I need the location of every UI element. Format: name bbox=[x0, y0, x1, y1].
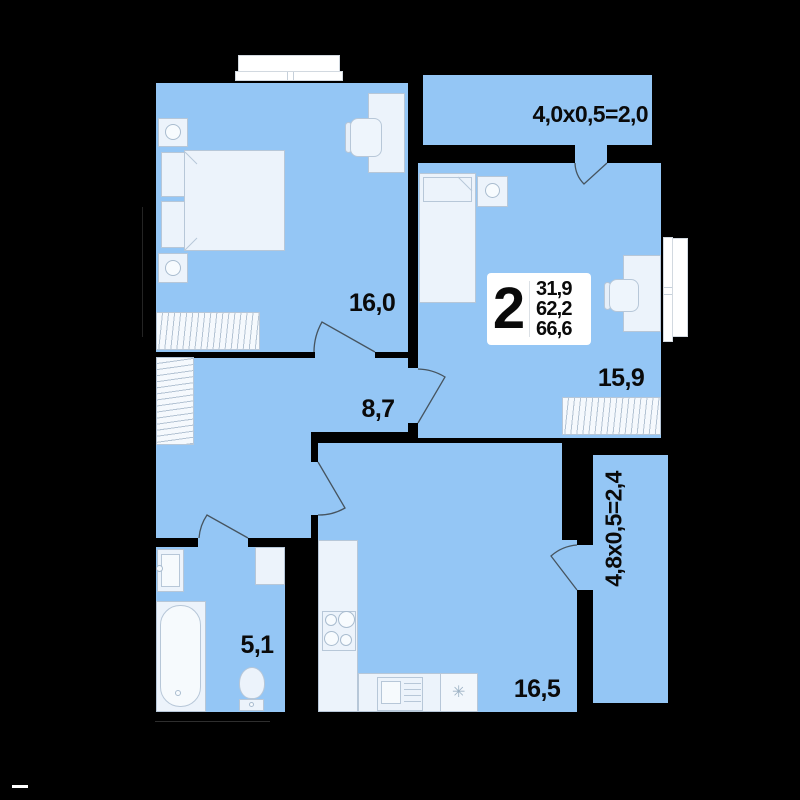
washbasin-bowl bbox=[161, 554, 180, 587]
lamp-icon bbox=[165, 260, 181, 276]
balcony-top-label: 4,0x0,5=2,0 bbox=[423, 101, 648, 128]
chair bbox=[609, 279, 639, 312]
door-opening-balcony-right bbox=[577, 545, 593, 590]
living-area-value: 31,9 bbox=[536, 279, 591, 299]
bedroom2-area-label: 15,9 bbox=[571, 364, 671, 393]
apartment-area-value: 62,2 bbox=[536, 299, 591, 319]
corner-dash bbox=[12, 785, 28, 788]
door-opening-bedroom bbox=[315, 352, 375, 358]
total-area-value: 66,6 bbox=[536, 319, 591, 339]
bed-pillow bbox=[161, 201, 185, 248]
dish-rack-icon bbox=[404, 683, 421, 705]
wardrobe bbox=[156, 312, 260, 350]
window-tick bbox=[287, 72, 288, 80]
burner-icon bbox=[324, 631, 339, 646]
kitchen-sink bbox=[381, 681, 401, 704]
door-opening-kitchen bbox=[311, 462, 318, 515]
bedroom-area-label: 16,0 bbox=[322, 289, 422, 318]
window-tick bbox=[293, 72, 294, 80]
hallway-area-label: 8,7 bbox=[328, 395, 428, 424]
appliance-star-icon: ✳ bbox=[452, 685, 465, 701]
bedroom2-window-pane bbox=[672, 238, 688, 337]
lamp-icon bbox=[165, 124, 181, 140]
wall-notch bbox=[562, 443, 577, 540]
bathroom-area-label: 5,1 bbox=[207, 631, 307, 660]
window-tick bbox=[664, 294, 672, 295]
ground-line bbox=[155, 721, 270, 722]
double-bed bbox=[184, 150, 285, 251]
toilet-button-icon bbox=[249, 702, 254, 707]
hall-wardrobe bbox=[156, 357, 194, 445]
lamp-icon bbox=[485, 183, 500, 198]
chair bbox=[350, 118, 382, 157]
rooms-count: 2 bbox=[487, 280, 529, 338]
kitchen-area-label: 16,5 bbox=[487, 675, 587, 704]
window-tick bbox=[664, 287, 672, 288]
areas-list: 31,9 62,2 66,6 bbox=[530, 279, 591, 339]
faucet-icon bbox=[156, 565, 163, 572]
door-opening-bathroom bbox=[198, 538, 248, 548]
bed-pillow bbox=[161, 152, 185, 197]
burner-icon bbox=[325, 614, 337, 626]
burner-icon bbox=[340, 634, 352, 646]
burner-icon bbox=[338, 611, 355, 628]
bed-pillow bbox=[423, 177, 472, 202]
bedroom-window-pane bbox=[238, 55, 340, 72]
balcony-right-label: 4,8x0,5=2,4 bbox=[601, 471, 628, 587]
drain-icon bbox=[175, 690, 181, 696]
door-opening-balcony-top bbox=[575, 145, 607, 163]
unit-info-badge: 2 31,9 62,2 66,6 bbox=[487, 273, 591, 345]
duct-shaft bbox=[255, 547, 285, 585]
toilet-bowl bbox=[239, 667, 265, 699]
bedroom-window-sill bbox=[235, 71, 343, 81]
floorplan-canvas: ✳ 16,0 8,7 15,9 5,1 16,5 4,0x0,5=2,0 4,8… bbox=[0, 0, 800, 800]
facade-line bbox=[142, 207, 143, 337]
wardrobe bbox=[562, 397, 661, 435]
